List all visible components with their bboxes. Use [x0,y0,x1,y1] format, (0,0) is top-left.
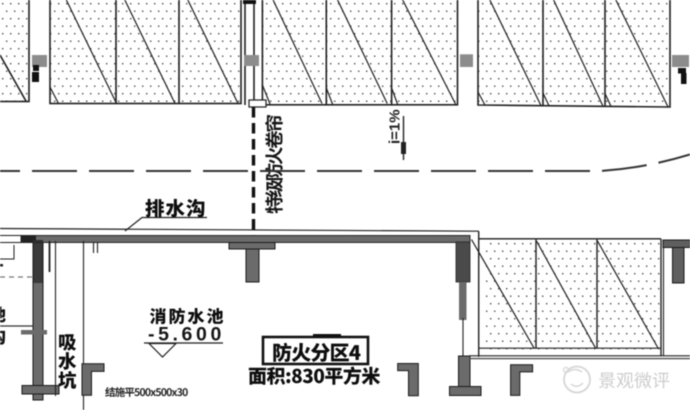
svg-text:-5.600: -5.600 [148,324,225,346]
svg-text:i=1%: i=1% [387,109,404,144]
